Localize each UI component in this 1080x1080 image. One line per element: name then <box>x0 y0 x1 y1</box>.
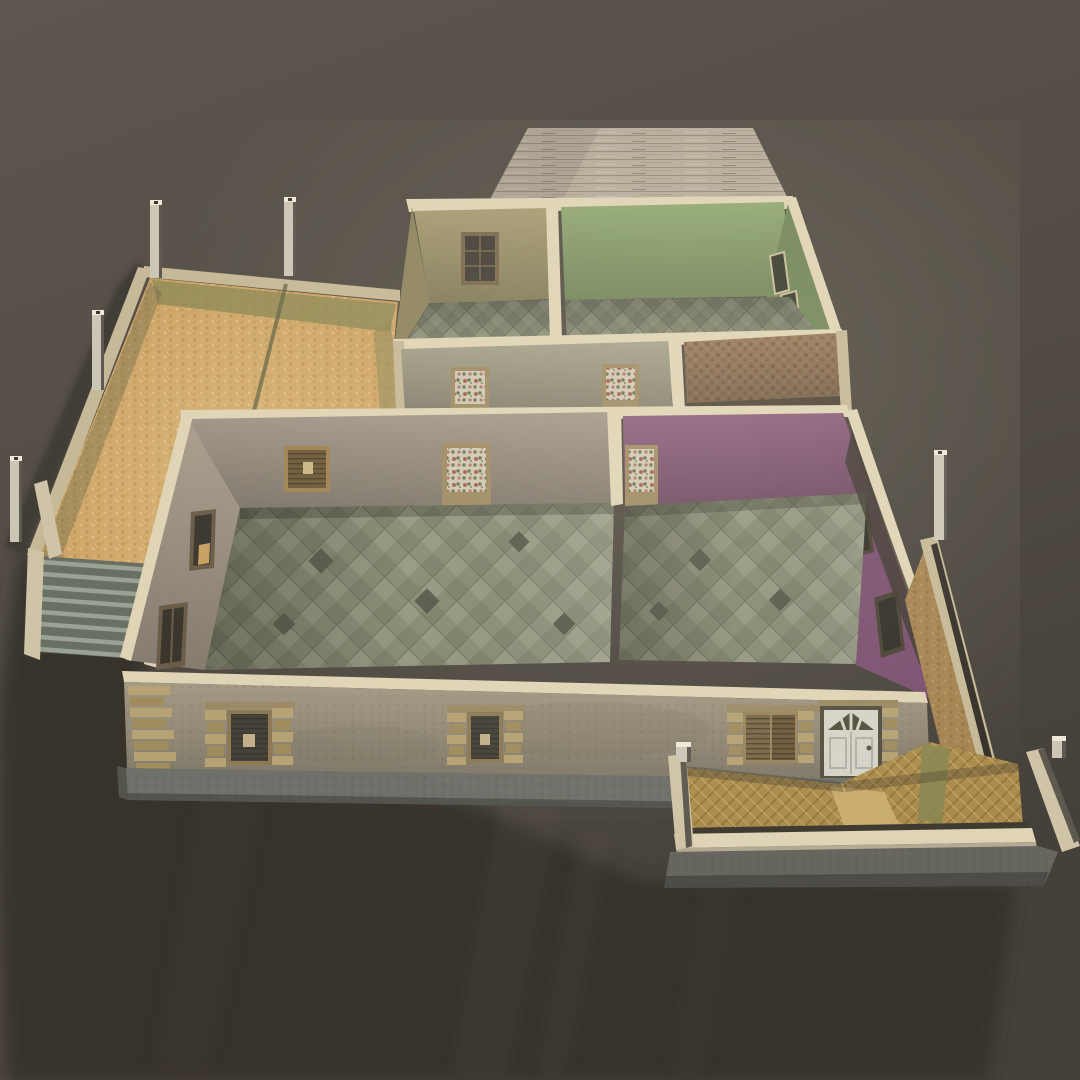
porch-post-east <box>1052 736 1066 758</box>
render-canvas <box>0 0 1080 1080</box>
fence-post <box>92 310 104 390</box>
key-light-glow <box>120 120 1020 820</box>
fence-post <box>10 456 22 542</box>
